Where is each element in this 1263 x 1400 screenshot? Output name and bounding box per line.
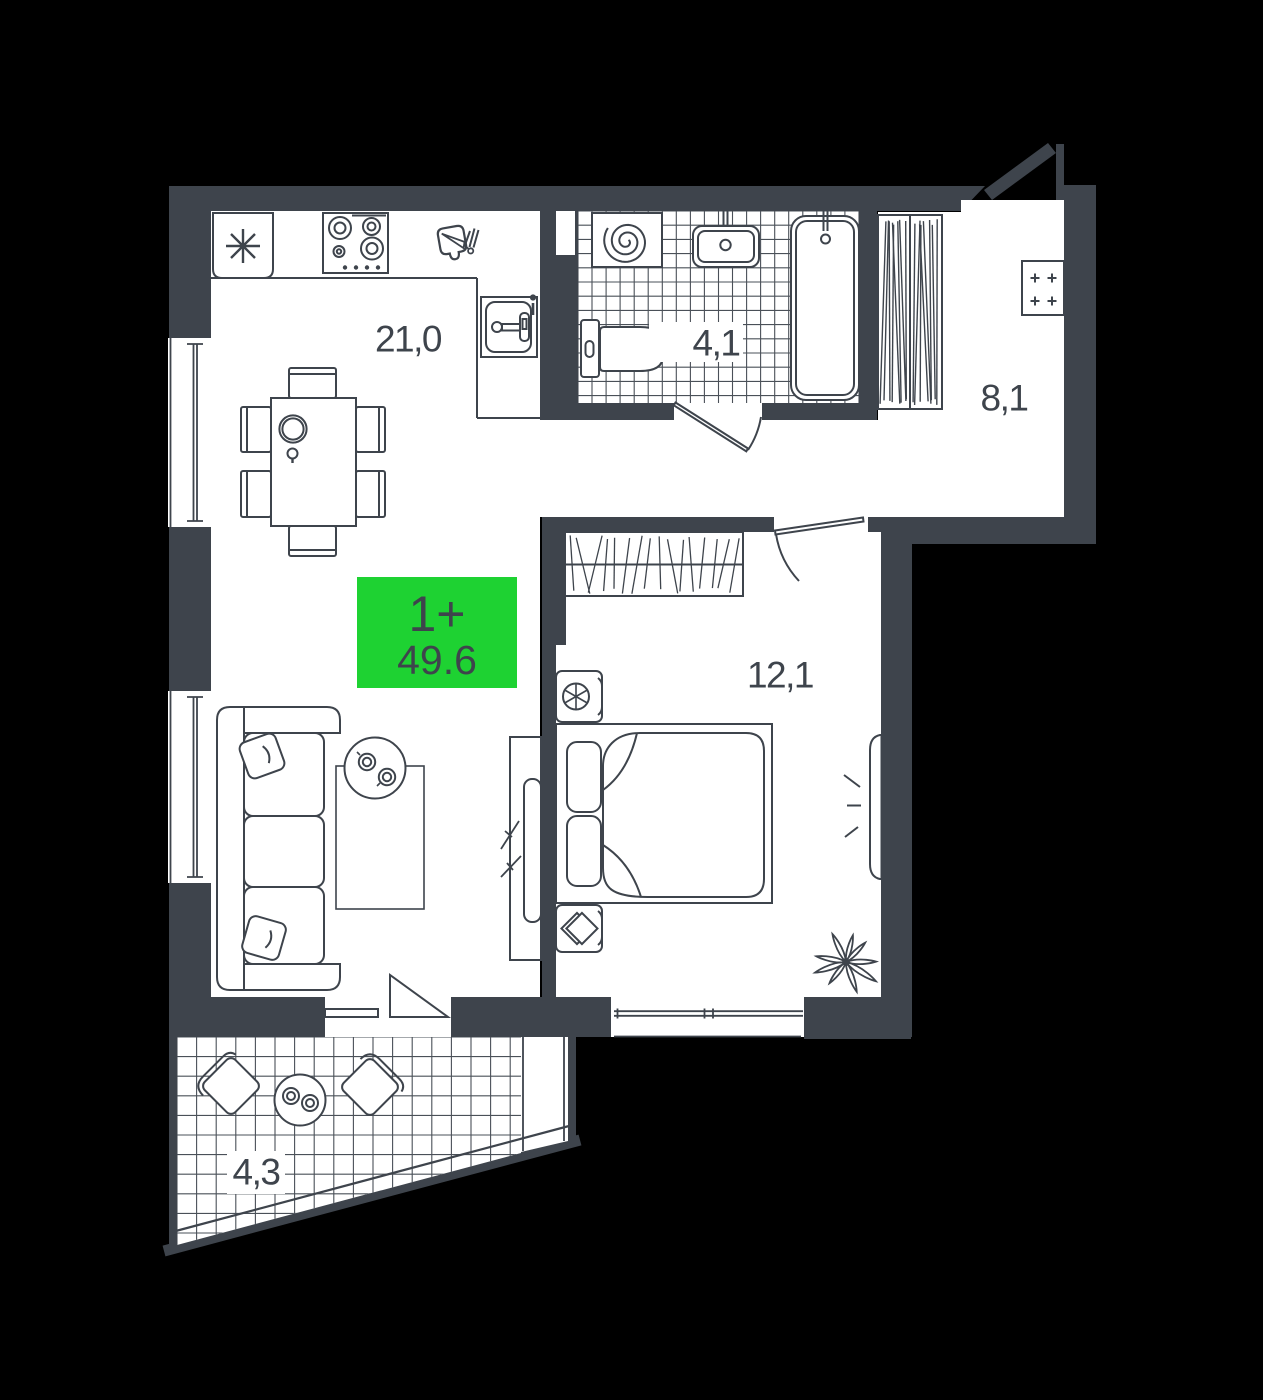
svg-text:21,0: 21,0	[375, 319, 442, 360]
svg-text:8,1: 8,1	[981, 378, 1028, 419]
svg-text:12,1: 12,1	[747, 655, 813, 696]
svg-text:1+: 1+	[408, 586, 465, 642]
svg-text:4,1: 4,1	[693, 323, 740, 364]
svg-text:4,3: 4,3	[233, 1152, 280, 1193]
svg-text:49.6: 49.6	[397, 637, 477, 683]
